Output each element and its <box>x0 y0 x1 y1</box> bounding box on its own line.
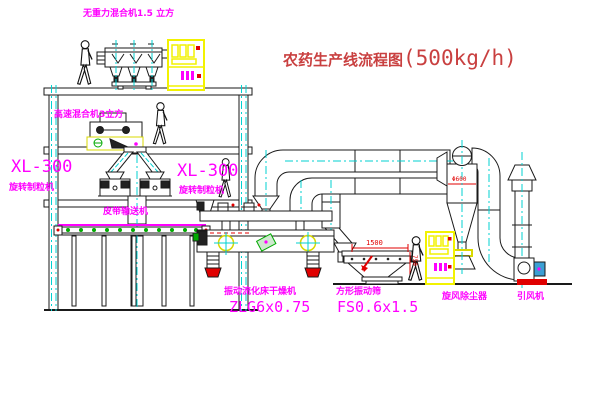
belt-conveyor <box>54 225 210 306</box>
label-high-speed-mixer: 高速混合机3立方 <box>54 111 123 120</box>
label-cyclone: 旋风除尘器 <box>442 293 487 302</box>
diagram-title-capacity: (500kg/h) <box>403 46 517 70</box>
person-figure-top <box>78 41 92 84</box>
control-cabinet-left <box>168 40 204 90</box>
label-fan: 引风机 <box>517 293 544 302</box>
label-granulator-center-name: 旋转制粒机 <box>179 187 224 196</box>
gravity-free-mixer <box>97 44 176 89</box>
label-dryer-model: ZLG6x0.75 <box>229 298 310 316</box>
pesticide-line-flow-diagram: 农药生产线流程图(500kg/h) 无重力混合机1.5 立方 高速混合机3立方 … <box>0 0 600 403</box>
dimension-sieve-height: 750 <box>411 255 418 266</box>
label-granulator-left-model: XL-300 <box>11 157 72 177</box>
return-duct <box>472 148 520 280</box>
granulator-unit-right <box>138 172 172 196</box>
label-granulator-center-model: XL-300 <box>177 161 238 181</box>
dimension-cyclone-diameter: Φ600 <box>452 176 466 183</box>
granulator-unit-left <box>98 172 132 196</box>
fluid-bed-dryer <box>193 200 334 277</box>
dimension-sieve-width: 1500 <box>366 239 383 247</box>
label-gravity-free-mixer: 无重力混合机1.5 立方 <box>83 10 174 19</box>
diagram-title: 农药生产线流程图(500kg/h) <box>283 46 517 70</box>
label-dryer-name: 振动流化床干燥机 <box>224 288 296 297</box>
diagram-title-text: 农药生产线流程图 <box>283 51 403 69</box>
induced-draft-fan <box>514 258 547 285</box>
exhaust-duct-lower <box>290 178 450 213</box>
label-sieve-name: 方形振动筛 <box>336 288 381 297</box>
label-belt-conveyor: 皮带输送机 <box>103 208 148 217</box>
label-sieve-model: FS0.6x1.5 <box>337 298 418 316</box>
control-cabinet-right <box>426 232 454 284</box>
label-granulator-left-name: 旋转制粒机 <box>9 184 54 193</box>
person-figure-floor2 <box>153 103 167 144</box>
